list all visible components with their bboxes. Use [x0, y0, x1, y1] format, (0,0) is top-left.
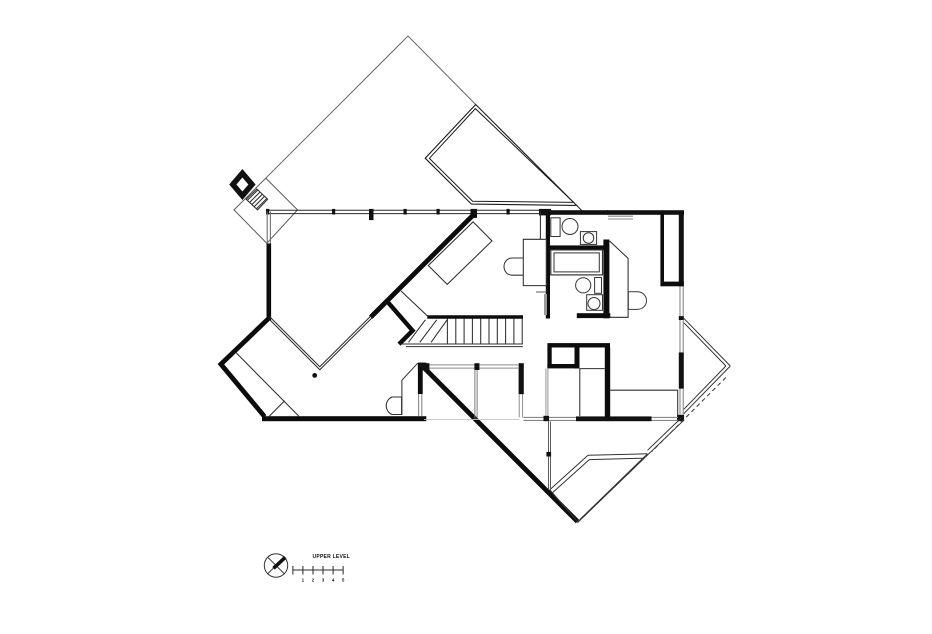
svg-text:5: 5 [342, 578, 345, 583]
svg-text:4: 4 [332, 578, 335, 583]
svg-text:3: 3 [322, 578, 325, 583]
svg-text:2: 2 [312, 578, 315, 583]
svg-text:1: 1 [302, 578, 305, 583]
svg-text:UPPER LEVEL: UPPER LEVEL [313, 554, 350, 560]
